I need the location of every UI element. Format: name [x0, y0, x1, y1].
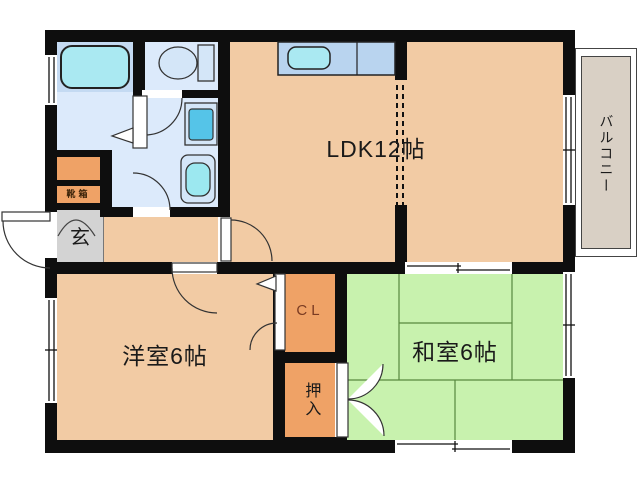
oshiire-double-doors: [337, 363, 384, 437]
washroom-door-arc: [133, 173, 170, 210]
washbasin-icon: [181, 155, 215, 203]
western-room-label: 洋室6帖: [85, 342, 245, 370]
washroom-folding-door: [112, 96, 147, 148]
kitchen-sink-counter-icon: [278, 42, 395, 75]
washing-machine-icon: [185, 103, 217, 145]
toilet-door-arc: [145, 98, 182, 135]
western-room-door: [172, 263, 217, 313]
floor-plan: LDK12帖 洋室6帖 和室6帖 バルコニー 玄 靴箱 CL 押入: [0, 0, 640, 480]
entrance-label: 玄: [62, 226, 98, 250]
front-door: [2, 212, 50, 268]
japanese-room-label: 和室6帖: [390, 338, 520, 366]
bathtub-icon: [61, 46, 129, 88]
shoe-box-label: 靴箱: [57, 188, 100, 201]
closet-label: CL: [285, 301, 335, 321]
oshiire-label: 押入: [301, 374, 319, 426]
hall-ldk-door: [221, 218, 272, 261]
ldk-label: LDK12帖: [296, 136, 456, 162]
closet-folding-door: [250, 274, 285, 350]
balcony-label: バルコニー: [596, 94, 616, 214]
toilet-icon: [159, 45, 214, 81]
